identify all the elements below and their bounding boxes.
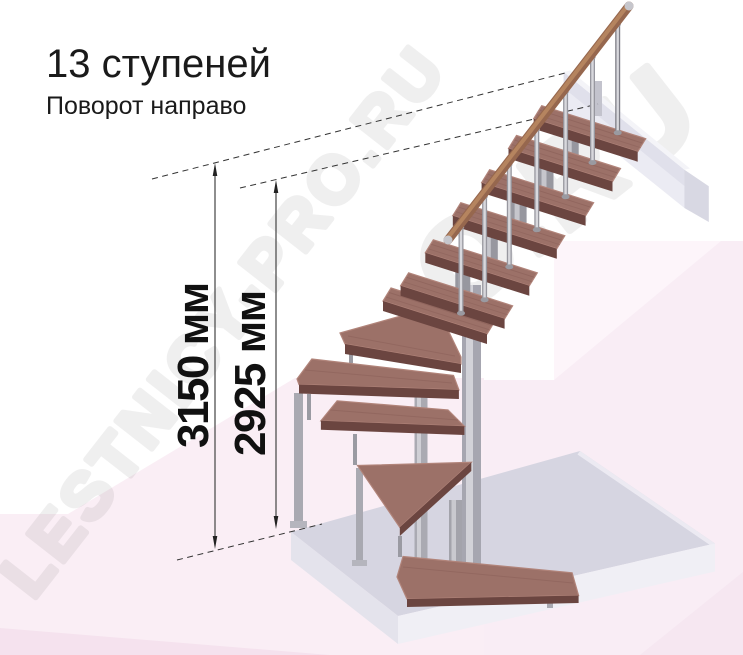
svg-text:13 ступеней: 13 ступеней [46,42,271,86]
svg-text:3150 мм: 3150 мм [169,283,218,448]
svg-text:2925 мм: 2925 мм [226,291,275,456]
svg-text:Поворот направо: Поворот направо [46,92,246,120]
